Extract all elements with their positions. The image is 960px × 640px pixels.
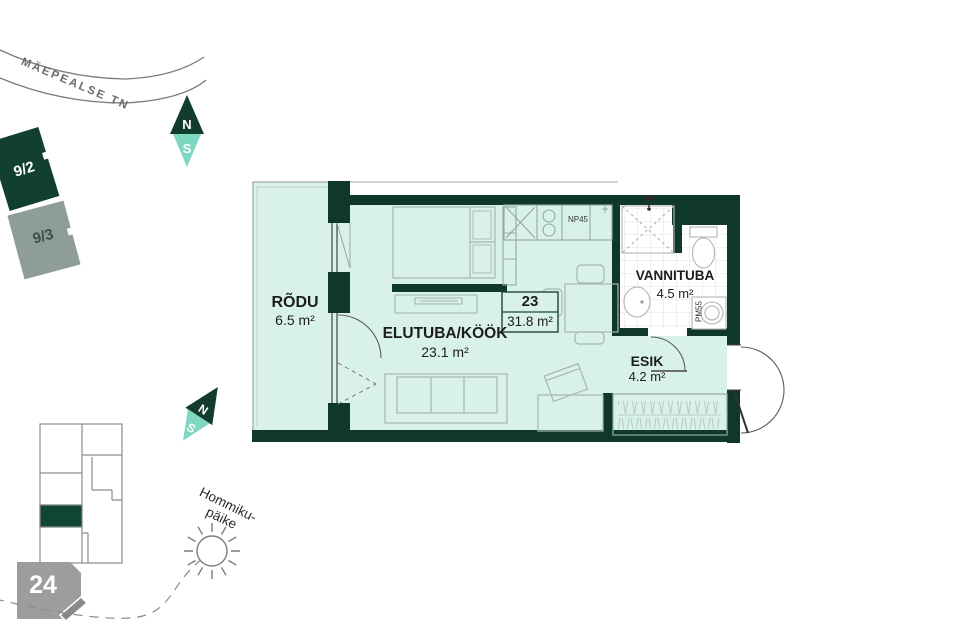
apartment-total-area: 31.8 m² xyxy=(502,314,558,329)
apartment-number: 23 xyxy=(502,293,558,310)
key-plan xyxy=(40,424,122,563)
appliance-code-stove: NP45 xyxy=(564,215,592,224)
room-area-rodu: 6.5 m² xyxy=(253,312,337,328)
room-area-vannituba: 4.5 m² xyxy=(625,286,725,301)
building-9-3: 9/3 xyxy=(7,200,82,279)
room-label-rodu: RÕDU xyxy=(253,294,337,312)
building-9-2: 9/2 xyxy=(0,126,61,211)
compass-left-icon: N S xyxy=(170,378,232,449)
compass-top-north: N xyxy=(182,117,191,132)
floor-plan-drawing: 9/2 9/3 N S N S xyxy=(0,0,960,640)
toilet xyxy=(690,227,717,268)
key-plan-tag-number: 24 xyxy=(20,571,66,600)
room-label-elutuba-kook: ELUTUBA/KÖÖK xyxy=(378,325,512,343)
key-plan-highlighted-unit xyxy=(40,505,82,527)
room-label-vannituba: VANNITUBA xyxy=(625,268,725,283)
room-area-elutuba-kook: 23.1 m² xyxy=(378,344,512,360)
floor-plan-page: 9/2 9/3 N S N S xyxy=(0,0,960,640)
room-area-esik: 4.2 m² xyxy=(614,369,680,384)
appliance-code-washing-machine: PM55 xyxy=(695,294,704,330)
compass-top-icon: N S xyxy=(170,95,204,167)
tv-partition xyxy=(392,284,507,292)
room-label-esik: ESIK xyxy=(614,353,680,369)
compass-top-south: S xyxy=(183,141,192,156)
